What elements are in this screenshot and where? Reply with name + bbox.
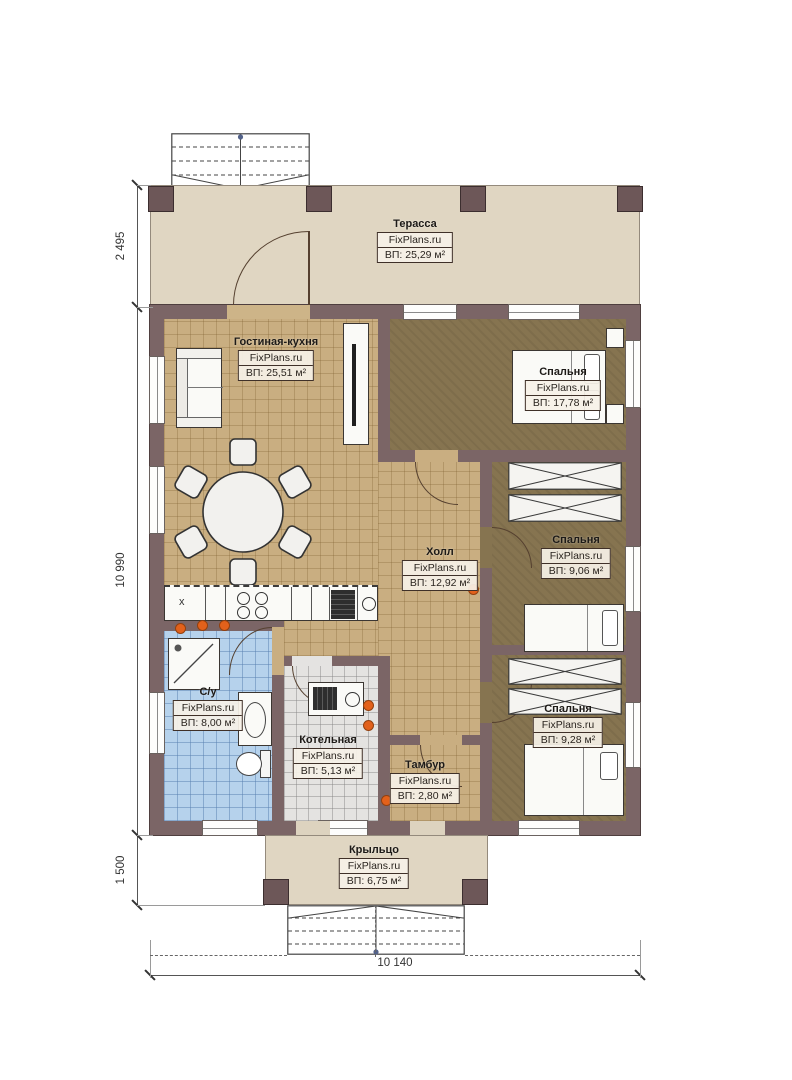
radiator [363, 720, 374, 731]
extension-line [137, 185, 151, 186]
stove-burner [255, 592, 268, 605]
watermark: FixPlans.ru [403, 561, 477, 576]
room-name: С/у [173, 686, 243, 698]
door-opening [410, 821, 445, 835]
window [625, 546, 641, 612]
watermark: FixPlans.ru [542, 549, 610, 564]
porch-stairs [287, 905, 465, 957]
wardrobe [508, 658, 622, 685]
pillow [600, 752, 618, 780]
window [518, 820, 580, 836]
door-opening [296, 821, 330, 835]
dimension-porch-depth: 1 500 [115, 840, 127, 900]
room-label-living-kitchen: Гостиная-кухня FixPlans.ru ВП: 25,51 м² [234, 336, 318, 381]
room-area: ВП: 9,28 м² [534, 733, 602, 747]
room-area: ВП: 6,75 м² [340, 874, 408, 888]
door-opening [272, 627, 284, 675]
watermark: FixPlans.ru [534, 718, 602, 733]
kitchen-sink-2 [362, 597, 376, 611]
room-label-terrace: Терасса FixPlans.ru ВП: 25,29 м² [377, 218, 453, 263]
room-label-porch: Крыльцо FixPlans.ru ВП: 6,75 м² [339, 844, 409, 889]
room-area: ВП: 5,13 м² [294, 764, 362, 778]
room-name: Спальня [541, 534, 611, 546]
room-label-bathroom: С/у FixPlans.ru ВП: 8,00 м² [173, 686, 243, 731]
interior-wall [284, 656, 292, 666]
room-label-bedroom3: Спальня FixPlans.ru ВП: 9,28 м² [533, 703, 603, 748]
construction-line [150, 955, 287, 956]
stove-burner [255, 606, 268, 619]
door-opening [415, 450, 458, 462]
floor-plan: х [0, 0, 792, 1080]
room-name: Гостиная-кухня [234, 336, 318, 348]
room-area: ВП: 8,00 м² [174, 716, 242, 730]
watermark: FixPlans.ru [340, 859, 408, 874]
watermark: FixPlans.ru [526, 381, 600, 396]
room-name: Холл [402, 546, 478, 558]
shower [168, 638, 220, 690]
interior-wall [378, 745, 390, 821]
interior-wall [480, 568, 492, 682]
room-name: Спальня [533, 703, 603, 715]
room-name: Терасса [377, 218, 453, 230]
extension-line [150, 940, 151, 978]
dimension-line-bottom [150, 975, 640, 976]
nightstand [606, 404, 624, 424]
porch-column [462, 879, 488, 905]
appliance [331, 590, 355, 619]
room-name: Крыльцо [339, 844, 409, 856]
radiator [175, 623, 186, 634]
room-label-bedroom1: Спальня FixPlans.ru ВП: 17,78 м² [525, 366, 601, 411]
construction-line [375, 905, 376, 957]
room-name: Тамбур [390, 759, 460, 771]
room-area: ВП: 17,78 м² [526, 396, 600, 410]
terrace-column [148, 186, 174, 212]
door-opening [227, 305, 310, 319]
stove-burner [237, 592, 250, 605]
pillow [602, 610, 618, 646]
door-opening [480, 527, 492, 568]
terrace-column [306, 186, 332, 212]
hall-floor [378, 462, 480, 745]
nightstand [606, 328, 624, 348]
interior-wall [272, 675, 284, 821]
terrace-column [460, 186, 486, 212]
window [202, 820, 258, 836]
wardrobe [508, 494, 622, 522]
interior-wall [458, 450, 626, 462]
interior-wall [378, 656, 390, 745]
room-name: Спальня [525, 366, 601, 378]
door-opening [420, 735, 462, 745]
window [149, 466, 165, 534]
room-area: ВП: 25,29 м² [378, 248, 452, 262]
room-area: ВП: 12,92 м² [403, 576, 477, 590]
window [625, 340, 641, 408]
dining-table-set [168, 437, 318, 587]
radiator [363, 700, 374, 711]
interior-wall [378, 450, 415, 462]
room-area: ВП: 9,06 м² [542, 564, 610, 578]
watermark: FixPlans.ru [239, 351, 313, 366]
boiler-unit [308, 682, 364, 716]
watermark: FixPlans.ru [294, 749, 362, 764]
interior-wall [462, 735, 480, 745]
room-name: Котельная [293, 734, 363, 746]
extension-line [137, 905, 265, 906]
entry-stairs-top [171, 133, 310, 190]
room-area: ВП: 2,80 м² [391, 789, 459, 803]
interior-wall [378, 319, 390, 462]
porch-column [263, 879, 289, 905]
dimension-line-left [137, 185, 138, 905]
window [403, 304, 457, 320]
extension-line [137, 307, 153, 308]
construction-line [465, 955, 640, 956]
interior-wall [332, 656, 378, 666]
watermark: FixPlans.ru [391, 774, 459, 789]
dimension-total-width: 10 140 [365, 957, 425, 969]
sink-symbol: х [179, 596, 185, 608]
window [625, 702, 641, 768]
dimension-house-depth: 10 990 [115, 535, 127, 605]
stove-burner [237, 606, 250, 619]
room-label-hall: Холл FixPlans.ru ВП: 12,92 м² [402, 546, 478, 591]
room-label-boiler: Котельная FixPlans.ru ВП: 5,13 м² [293, 734, 363, 779]
radiator [197, 620, 208, 631]
watermark: FixPlans.ru [174, 701, 242, 716]
door-opening [292, 656, 332, 666]
window [149, 356, 165, 424]
sofa [176, 348, 222, 428]
radiator [219, 620, 230, 631]
extension-line [137, 835, 153, 836]
tv-stand [343, 323, 369, 445]
window [149, 692, 165, 754]
corridor-floor [284, 621, 378, 656]
tv-icon [352, 344, 356, 426]
room-label-vestibule: Тамбур FixPlans.ru ВП: 2,80 м² [390, 759, 460, 804]
wardrobe [508, 462, 622, 490]
interior-wall [480, 723, 492, 821]
extension-line [640, 940, 641, 978]
door-opening [480, 682, 492, 723]
watermark: FixPlans.ru [378, 233, 452, 248]
room-label-bedroom2: Спальня FixPlans.ru ВП: 9,06 м² [541, 534, 611, 579]
dimension-terrace-depth: 2 495 [115, 216, 127, 276]
room-area: ВП: 25,51 м² [239, 366, 313, 380]
kitchen-counter: х [164, 585, 378, 621]
terrace-column [617, 186, 643, 212]
window [508, 304, 580, 320]
terrace-door-leaf [308, 231, 310, 305]
interior-wall [480, 462, 492, 527]
